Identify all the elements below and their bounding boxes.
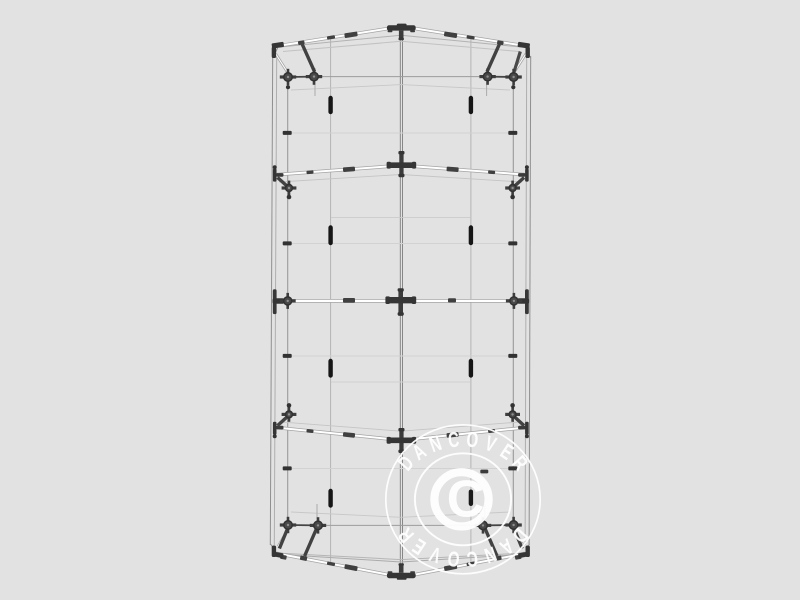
svg-text:C: C bbox=[447, 471, 485, 529]
